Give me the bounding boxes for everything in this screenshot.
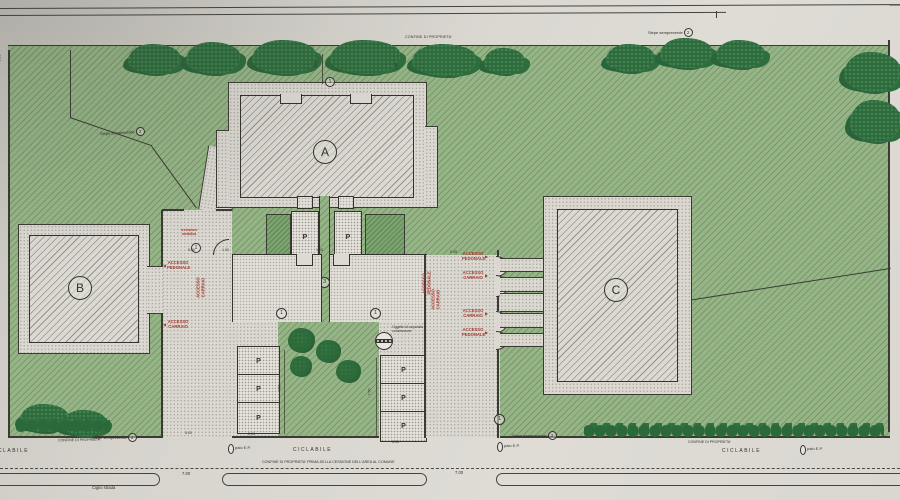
garage-apron — [500, 313, 544, 328]
access-label-right-3: ACCESSO CARRAIO ▶ — [462, 309, 488, 318]
dim-550: 5.50 — [188, 249, 195, 253]
dim-700: 7.00 — [455, 471, 463, 476]
ref-1: 1 — [325, 77, 335, 87]
dim-line — [322, 54, 323, 84]
accesso-carraio-label: ACCESSO CARRAIO — [167, 320, 189, 329]
siepe-text: Siepe sempreverde — [512, 433, 547, 438]
confine-cessione-label: CONFINE DI PROPRIETA' PRIMA DELLA CESSIO… — [262, 460, 395, 464]
streetlight-symbol — [497, 442, 503, 452]
hedge — [16, 418, 110, 434]
dim-500: 5.00 — [185, 432, 192, 436]
access-label-left-2: ◀ ACCESSO CARRAIO — [163, 320, 189, 329]
tree — [288, 328, 315, 353]
tree — [330, 40, 400, 74]
dim-100: 1.00 — [316, 249, 323, 253]
arrow-right-icon: ▶ — [485, 274, 488, 278]
dim-500: 5.00 — [315, 60, 319, 67]
parking-stall: P — [380, 355, 427, 386]
garage-apron — [500, 258, 544, 272]
recinzione-label: recinzione metallica — [176, 229, 202, 236]
dim-700: 7.00 — [182, 472, 190, 477]
ref-2: 2 — [128, 433, 137, 442]
dim-750: 7.50 — [369, 388, 373, 395]
ciclabile-label: CICLABILE — [722, 449, 761, 455]
palo-ep-label: palo E.P. — [807, 447, 823, 452]
entry-step — [297, 196, 313, 209]
tree — [336, 360, 361, 383]
wall-line — [216, 209, 232, 211]
palo-ep-label: palo E.P. — [235, 446, 251, 451]
oggetto-label: Oggetto di separata concessione — [392, 326, 432, 334]
boundary-line — [70, 50, 71, 118]
dim-line — [376, 358, 377, 438]
dim-505: 5.05 — [450, 251, 457, 255]
siepe-text: Siepe sempreverde — [648, 30, 683, 35]
accesso-carraio-label: ACCESSO CARRAIO — [196, 277, 205, 299]
road-tick — [716, 11, 717, 18]
building-a-notch — [350, 94, 372, 104]
dim-500: 5.00 — [248, 433, 255, 437]
siepe-label: Siepe sempreverde 2 — [648, 28, 693, 37]
green-patch — [266, 214, 291, 255]
confine-dashed-line — [0, 468, 900, 469]
access-label-left-1: ◀ ACCESSO PEDONALE — [163, 261, 189, 270]
parking-stall: P — [237, 374, 280, 405]
streetlight-symbol — [800, 445, 806, 455]
entry-step — [338, 196, 354, 209]
garage-apron — [500, 293, 544, 312]
wall-line — [162, 209, 184, 211]
parking-stall: P — [380, 411, 427, 442]
ref-2: 2 — [684, 28, 693, 37]
accesso-pedonale-label: ACCESSO PEDONALE — [462, 328, 484, 337]
dim-150: 1.50 — [396, 62, 400, 69]
palo-ep-label: palo E.P. — [504, 444, 520, 449]
wall-line — [497, 295, 499, 311]
green-patch — [365, 214, 405, 255]
tree — [252, 40, 316, 74]
tree — [290, 356, 312, 377]
tree — [316, 340, 341, 363]
dim-750: 7.50 — [279, 384, 283, 391]
walkway-step-right — [425, 126, 438, 208]
streetlight-symbol — [228, 444, 234, 454]
hedge — [584, 423, 884, 439]
access-label-right-4: ACCESSO PEDONALE ▶ — [462, 328, 488, 337]
garage-apron — [500, 333, 544, 347]
road-top-line-2 — [0, 12, 726, 16]
courtyard-notch — [296, 254, 313, 266]
access-label-right-2: ACCESSO CARRAIO ▶ — [462, 271, 488, 280]
tree — [850, 100, 900, 142]
siepe-label: Siepe sempreverde 2 — [512, 431, 557, 440]
dim-100: 1.00 — [222, 249, 229, 253]
parking-stall: P — [237, 402, 280, 434]
siepe-text: Siepe sempreverde — [100, 129, 135, 136]
arrow-right-icon: ▶ — [485, 255, 488, 259]
confine-label: CONFINE DI PROPRIETA' — [58, 439, 101, 444]
walkway-step-left — [216, 130, 229, 208]
ciglio-strada-label: Ciglio strada — [92, 486, 115, 491]
parking-stall: P — [237, 346, 280, 377]
parking-stall: P — [380, 383, 427, 414]
arrow-right-icon: ▶ — [485, 331, 488, 335]
boundary-line-left — [8, 50, 10, 438]
access-label-right-1: ACCESSO PEDONALE ▶ — [462, 252, 488, 261]
tree — [844, 52, 900, 92]
ref-1: 1 — [276, 308, 287, 319]
garage-apron — [500, 277, 544, 292]
well-symbol — [375, 332, 393, 350]
boundary-line-right — [888, 40, 890, 432]
ref-2: 2 — [135, 127, 144, 136]
dim-500: 5.00 — [0, 54, 2, 61]
tree — [484, 48, 524, 74]
dim-500: 5.00 — [392, 441, 399, 445]
road-island — [0, 473, 160, 486]
tree — [412, 44, 476, 76]
ref-1: 1 — [494, 414, 505, 425]
ref-2: 2 — [548, 431, 557, 440]
site-plan-photo: CONFINE DI PROPRIETA' A 3 P P 1 1 P — [0, 0, 900, 500]
building-a-label: A — [313, 140, 337, 164]
accesso-carraio-label: ACCESSO CARRAIO — [462, 271, 484, 280]
accesso-pedonale-label: ACCESSO PEDONALE — [167, 261, 189, 270]
accesso-pedonale-label: ACCESSO PEDONALE — [462, 252, 484, 261]
accesso-carraio-label: ACCESSO CARRAIO — [431, 289, 440, 311]
driveway-right — [425, 255, 500, 438]
ref-1: 1 — [370, 308, 381, 319]
accesso-carraio-label: ACCESSO CARRAIO — [462, 309, 484, 318]
well-band — [376, 339, 392, 343]
building-c-label: C — [604, 278, 628, 302]
tree — [128, 44, 180, 74]
road-island — [222, 473, 427, 486]
arrow-right-icon: ▶ — [485, 312, 488, 316]
ciclabile-label: CICLABILE — [0, 449, 29, 455]
tree — [660, 38, 712, 68]
tree — [716, 40, 764, 68]
tree — [186, 42, 240, 74]
ciclabile-label: CICLABILE — [293, 448, 332, 454]
building-b-label: B — [68, 276, 92, 300]
walkway-connector-b — [147, 266, 163, 314]
confine-label-top: CONFINE DI PROPRIETA' — [405, 36, 452, 40]
tree — [606, 44, 654, 72]
road-top-line — [0, 4, 900, 9]
arrow-left-icon: ◀ — [163, 264, 166, 268]
building-a-notch — [280, 94, 302, 104]
dim-line — [284, 350, 285, 434]
road-island — [496, 473, 900, 486]
arrow-left-icon: ◀ — [163, 323, 166, 327]
courtyard-notch — [333, 254, 350, 266]
confine-label: CONFINE DI PROPRIETA' — [688, 441, 731, 445]
